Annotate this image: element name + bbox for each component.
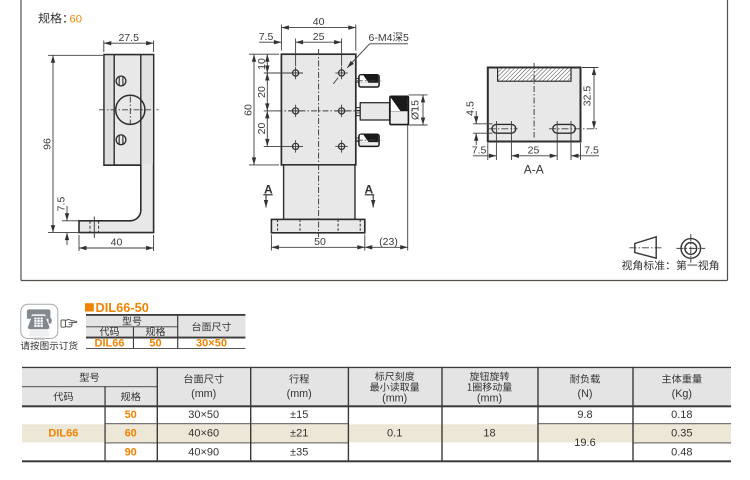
svg-text:DIL66: DIL66 [95, 338, 125, 350]
svg-text:50: 50 [314, 236, 326, 248]
svg-text:7.5: 7.5 [56, 197, 68, 212]
svg-text:(mm): (mm) [477, 393, 502, 405]
svg-text:20: 20 [256, 86, 268, 98]
svg-text:7.5: 7.5 [472, 144, 487, 156]
svg-text:50: 50 [125, 409, 137, 421]
svg-text:40: 40 [111, 237, 123, 249]
svg-text:60: 60 [70, 14, 82, 26]
svg-text:DIL66-50: DIL66-50 [96, 300, 149, 315]
svg-text:(mm): (mm) [382, 393, 407, 405]
svg-text:90: 90 [125, 447, 137, 459]
svg-text:96: 96 [42, 138, 54, 150]
svg-text:4.5: 4.5 [465, 101, 477, 116]
svg-text:(mm): (mm) [191, 388, 216, 400]
svg-text:25: 25 [313, 31, 325, 43]
svg-text:(23): (23) [379, 236, 398, 248]
svg-text:9.8: 9.8 [577, 409, 592, 421]
svg-text:10: 10 [256, 58, 268, 70]
svg-text:0.48: 0.48 [671, 447, 692, 459]
svg-text:20: 20 [256, 123, 268, 135]
svg-text:30×50: 30×50 [188, 409, 219, 421]
svg-text:±15: ±15 [290, 409, 308, 421]
svg-text:30×50: 30×50 [196, 338, 227, 350]
svg-text:7.5: 7.5 [584, 144, 599, 156]
svg-text:7.5: 7.5 [259, 31, 274, 43]
svg-text:DIL66: DIL66 [48, 427, 78, 439]
svg-text:A-A: A-A [524, 163, 544, 177]
svg-text:6-M4: 6-M4 [369, 32, 393, 44]
svg-text:40×60: 40×60 [188, 427, 219, 439]
svg-text:Ø15: Ø15 [410, 100, 422, 120]
svg-text:(Kg): (Kg) [672, 388, 692, 400]
svg-text:(N): (N) [578, 388, 593, 400]
svg-text:19.6: 19.6 [574, 437, 595, 449]
svg-text:60: 60 [243, 104, 255, 116]
svg-text:60: 60 [125, 427, 137, 439]
svg-text:18: 18 [483, 428, 495, 440]
svg-text:27.5: 27.5 [118, 32, 139, 44]
svg-text:0.1: 0.1 [387, 428, 402, 440]
svg-text:±35: ±35 [290, 447, 308, 459]
svg-text:32.5: 32.5 [582, 86, 594, 107]
svg-text:40×90: 40×90 [188, 447, 219, 459]
svg-text:40: 40 [313, 16, 325, 28]
svg-text:50: 50 [149, 338, 161, 350]
svg-text:(mm): (mm) [287, 388, 312, 400]
svg-text:25: 25 [528, 144, 540, 156]
svg-text:±21: ±21 [290, 427, 308, 439]
svg-text:0.35: 0.35 [671, 427, 692, 439]
svg-text:5: 5 [403, 32, 409, 44]
svg-text:0.18: 0.18 [671, 409, 692, 421]
